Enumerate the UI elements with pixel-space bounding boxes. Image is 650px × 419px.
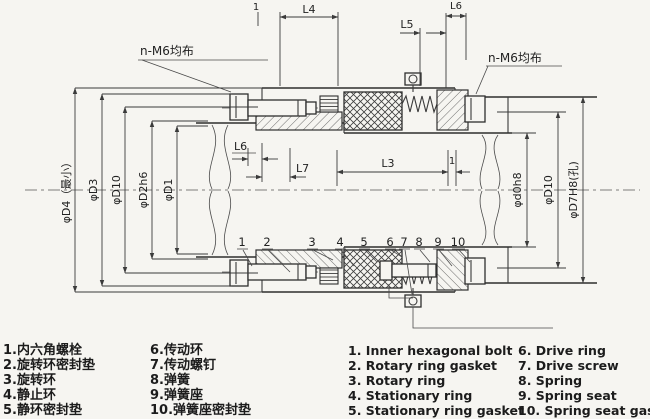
note-right-bolts: n-M6均布 — [488, 51, 542, 65]
note-left-bolts: n-M6均布 — [140, 44, 194, 58]
part-number-10: 10 — [451, 235, 466, 249]
legend-item-zh: 6.传动环 — [150, 343, 251, 358]
legend-item-en: 4. Stationary ring — [348, 388, 524, 403]
note-right-leader — [476, 66, 488, 94]
pn-leader — [420, 250, 430, 262]
legend-item-zh: 1.内六角螺栓 — [3, 343, 95, 358]
legend-item-en: 6. Drive ring — [518, 343, 650, 358]
dim-label-l6-mid: L6 — [234, 140, 247, 153]
dia-label-d4: φD4（最小） — [60, 157, 73, 224]
part-number-4: 4 — [336, 235, 343, 249]
dia-label-d7h8: φD7H8(孔) — [567, 161, 580, 219]
dia-label-d1: φD1 — [162, 179, 175, 202]
legend-item-en: 3. Rotary ring — [348, 373, 524, 388]
part-number-8: 8 — [415, 235, 422, 249]
legend-item-zh: 9.弹簧座 — [150, 388, 251, 403]
legend-item-en: 7. Drive screw — [518, 358, 650, 373]
mechanical-seal-drawing-page: 1 L4 L5 L6 n-M6均布 n-M6均布 L6 L7 L3 — [0, 0, 650, 419]
dim-label-l5: L5 — [400, 18, 413, 31]
note-left-leader — [142, 60, 231, 92]
seal-cross-section-diagram: 1 L4 L5 L6 n-M6均布 n-M6均布 L6 L7 L3 — [0, 0, 650, 342]
legend-item-zh: 8.弹簧 — [150, 373, 251, 388]
dia-label-d0h8: φd0h8 — [511, 172, 524, 207]
legend-item-zh: 5.静环密封垫 — [3, 403, 95, 418]
dim-label-one-mid: 1 — [449, 156, 455, 167]
legend-item-zh: 10.弹簧座密封垫 — [150, 403, 251, 418]
assembly-bottom-half — [196, 191, 597, 307]
legend-item-en: 8. Spring — [518, 373, 650, 388]
drive-screw-side-body — [392, 264, 436, 277]
legend-en-col1: 1. Inner hexagonal bolt 2. Rotary ring g… — [348, 343, 524, 418]
part-number-7: 7 — [400, 235, 407, 249]
legend-item-zh: 3.旋转环 — [3, 373, 95, 388]
dim-label-one-top: 1 — [253, 2, 259, 13]
legend-item-zh: 2.旋转环密封垫 — [3, 358, 95, 373]
part-number-9: 9 — [434, 235, 441, 249]
dim-label-l6-top: L6 — [450, 1, 462, 12]
drive-screw-side-head — [380, 261, 392, 280]
leader-bottom — [413, 307, 553, 328]
legend-item-en: 1. Inner hexagonal bolt — [348, 343, 524, 358]
legend-item-en: 5. Stationary ring gasket — [348, 403, 524, 418]
dim-label-l4: L4 — [302, 3, 315, 16]
part-number-1: 1 — [238, 235, 245, 249]
dia-label-d2h6: φD2h6 — [137, 172, 150, 209]
legend-zh-col2: 6.传动环 7.传动螺钉 8.弹簧 9.弹簧座 10.弹簧座密封垫 — [150, 343, 251, 418]
parts-legend: 1.内六角螺栓 2.旋转环密封垫 3.旋转环 4.静止环 5.静环密封垫 6.传… — [0, 342, 650, 419]
legend-item-zh: 4.静止环 — [3, 388, 95, 403]
part-number-5: 5 — [360, 235, 367, 249]
part-number-3: 3 — [308, 235, 315, 249]
dia-label-d10-left: φD10 — [110, 175, 123, 205]
legend-item-zh: 7.传动螺钉 — [150, 358, 251, 373]
legend-item-en: 9. Spring seat — [518, 388, 650, 403]
dim-label-l3: L3 — [381, 157, 394, 170]
part-number-2: 2 — [263, 235, 270, 249]
dim-label-l7: L7 — [296, 162, 309, 175]
dia-label-d3: φD3 — [87, 179, 100, 202]
dia-label-d10-right: φD10 — [542, 175, 555, 205]
legend-item-en: 10. Spring seat gasket — [518, 403, 650, 418]
part-number-6: 6 — [386, 235, 393, 249]
legend-en-col2: 6. Drive ring 7. Drive screw 8. Spring 9… — [518, 343, 650, 418]
legend-zh-col1: 1.内六角螺栓 2.旋转环密封垫 3.旋转环 4.静止环 5.静环密封垫 — [3, 343, 95, 418]
legend-item-en: 2. Rotary ring gasket — [348, 358, 524, 373]
